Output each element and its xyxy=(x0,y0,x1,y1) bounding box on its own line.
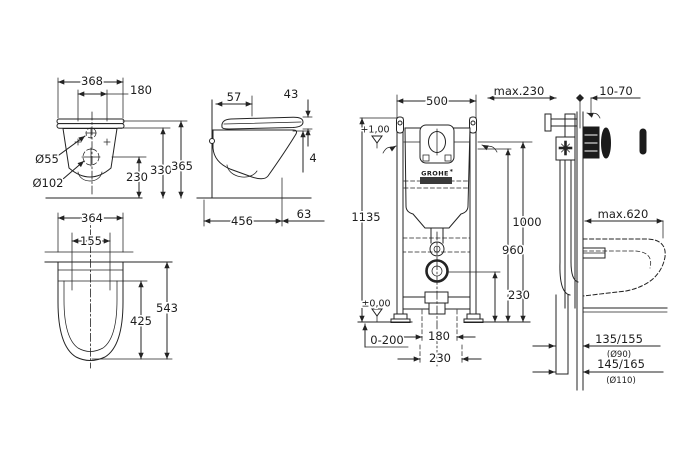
wc-plan-view: 364 155 425 543 xyxy=(45,211,178,368)
dim-330: 330 xyxy=(150,163,172,177)
floor-hatch xyxy=(46,198,142,206)
dim-230-front: 230 xyxy=(126,170,148,184)
dim-960: 960 xyxy=(502,243,524,257)
dim-230-outlet-height: 230 xyxy=(508,288,530,302)
dim-368: 368 xyxy=(81,74,103,88)
dim-dia110: (Ø110) xyxy=(606,375,636,386)
water-flow-arrow-right xyxy=(482,145,497,152)
floor-hatch xyxy=(197,198,311,206)
actuator-rod xyxy=(602,128,611,158)
dim-10-70: 10-70 xyxy=(599,84,632,98)
wall-hatch xyxy=(197,100,212,198)
installation-dimension-drawing: 368 180 Ø55 Ø102 230 330 365 xyxy=(0,0,700,456)
water-flow-arrow-left xyxy=(383,146,396,153)
dim-max-230: max.230 xyxy=(494,84,545,98)
dim-500: 500 xyxy=(426,94,448,108)
dim-180-drain: 180 xyxy=(428,329,450,343)
dim-365: 365 xyxy=(171,159,193,173)
dim-63: 63 xyxy=(297,207,312,221)
dim-543: 543 xyxy=(156,301,178,315)
dim-43: 43 xyxy=(284,87,299,101)
wc-front-view: 368 180 Ø55 Ø102 230 330 365 xyxy=(32,74,192,206)
level-plus-1-00: +1,00 xyxy=(360,125,389,136)
flush-plate xyxy=(420,125,454,163)
dim-1000: 1000 xyxy=(512,215,541,229)
flow-arrow xyxy=(587,113,600,118)
wc-side-view: 57 43 4 456 63 xyxy=(197,87,324,228)
dim-max-620: max.620 xyxy=(598,207,649,221)
brand-logo-text: GROHE xyxy=(421,170,449,178)
dim-4: 4 xyxy=(309,151,316,165)
dim-145-165: 145/165 xyxy=(597,357,645,371)
bowl-outline xyxy=(63,129,117,178)
dim-425: 425 xyxy=(130,314,152,328)
dim-456: 456 xyxy=(231,214,253,228)
dim-135-155: 135/155 xyxy=(595,332,643,346)
dim-dia102: Ø102 xyxy=(32,176,63,190)
dim-1135: 1135 xyxy=(351,210,380,224)
dim-180: 180 xyxy=(130,83,152,97)
dim-57: 57 xyxy=(227,90,242,104)
bowl-profile xyxy=(213,130,297,179)
installation-frame-front-view: GROHE * xyxy=(351,94,541,366)
service-opening xyxy=(403,238,470,252)
dim-230-drain: 230 xyxy=(429,351,451,365)
dim-0-200: 0-200 xyxy=(370,333,403,347)
push-button xyxy=(640,129,646,154)
level-zero: ±0,00 xyxy=(361,299,390,310)
brand-logo-mark: * xyxy=(450,168,454,176)
dim-dia55: Ø55 xyxy=(35,152,59,166)
fixing-bracket xyxy=(556,137,575,160)
dim-155: 155 xyxy=(80,234,102,248)
dim-364: 364 xyxy=(81,211,103,225)
installation-frame-side-view: max.230 10-70 max.620 135/155 (Ø90) 145/… xyxy=(488,84,667,390)
wall-hatch xyxy=(45,252,133,262)
technical-drawing-sheet: 368 180 Ø55 Ø102 230 330 365 xyxy=(0,0,700,456)
